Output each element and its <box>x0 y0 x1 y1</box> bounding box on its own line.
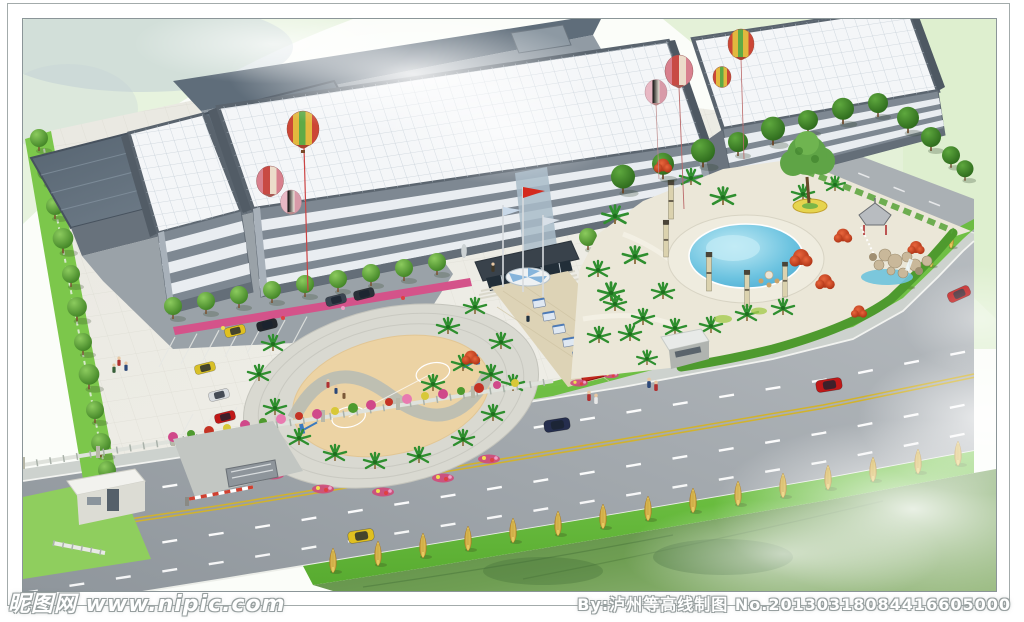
stock-image-page: 昵图网 www.nipic.com By:泸州等高线制图 No.20130318… <box>0 0 1024 622</box>
pedestrian <box>654 381 658 391</box>
rendering-image <box>22 18 997 592</box>
entrance-statue <box>461 244 467 258</box>
pedestrian <box>647 378 651 388</box>
pedestrian <box>594 394 598 404</box>
balloon <box>713 67 731 88</box>
balloon <box>281 190 302 215</box>
pedestrian <box>587 391 591 401</box>
nipic-watermark: 昵图网 www.nipic.com <box>8 586 286 618</box>
credit-watermark: By:泸州等高线制图 No.20130318084416605000 <box>577 591 1011 615</box>
campus-rendering-scene <box>23 19 996 591</box>
